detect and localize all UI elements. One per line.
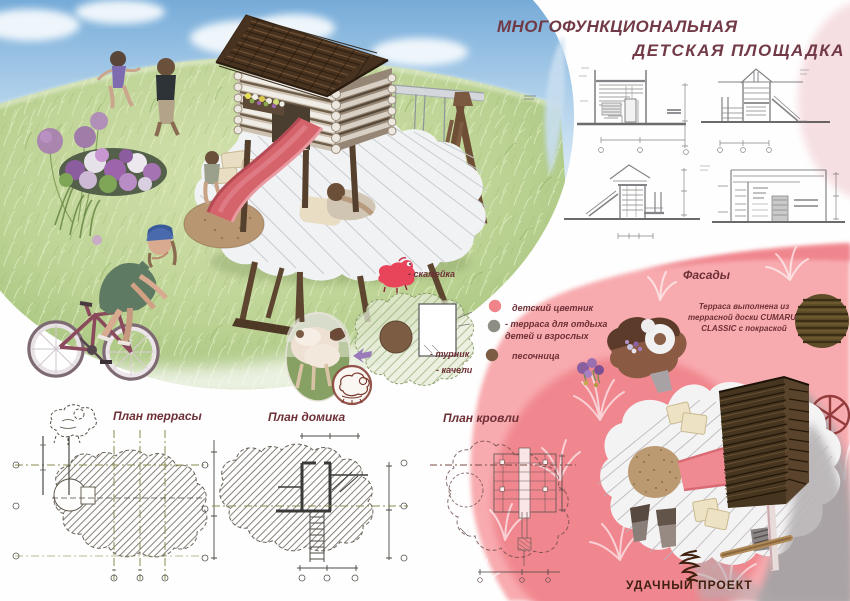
svg-text:террасной доски CUMARU: террасной доски CUMARU [688,313,796,322]
svg-text:План домика: План домика [268,410,346,424]
svg-text:УДАЧНЫЙ ПРОЕКТ: УДАЧНЫЙ ПРОЕКТ [626,577,753,592]
svg-text:детей и взрослых: детей и взрослых [505,331,590,341]
svg-text:Фасады: Фасады [683,268,731,282]
svg-text:ДЕТСКАЯ ПЛОЩАДКА: ДЕТСКАЯ ПЛОЩАДКА [631,41,845,60]
svg-text:- качели: - качели [436,365,473,375]
svg-text:- турник: - турник [430,349,470,359]
svg-text:детский цветник: детский цветник [512,303,593,313]
svg-text:песочница: песочница [512,351,560,361]
svg-text:План террасы: План террасы [113,409,203,423]
svg-text:Терраса выполнена из: Терраса выполнена из [699,302,790,311]
svg-text:МНОГОФУНКЦИОНАЛЬНАЯ: МНОГОФУНКЦИОНАЛЬНАЯ [497,17,738,36]
svg-text:- скамейка: - скамейка [408,269,455,279]
svg-text:- терраса для отдыха: - терраса для отдыха [505,319,607,329]
svg-text:CLASSIC с покраской: CLASSIC с покраской [701,324,787,333]
svg-text:План кровли: План кровли [443,411,520,425]
